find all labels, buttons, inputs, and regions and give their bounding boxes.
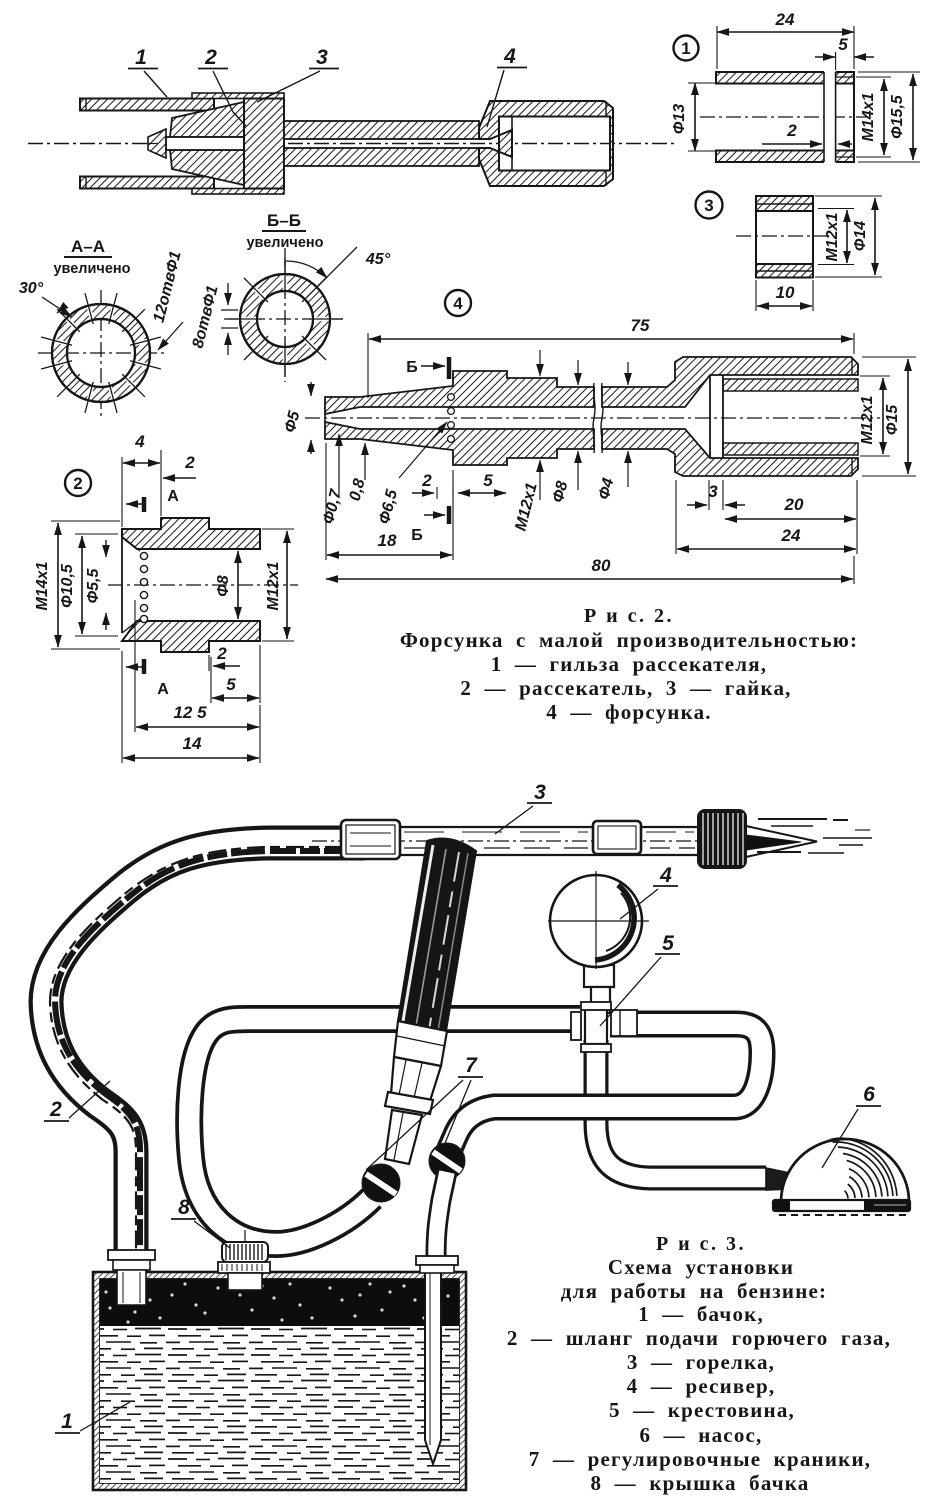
svg-text:Ф10,5: Ф10,5 [59,563,76,608]
svg-text:2: 2 [204,46,217,69]
svg-text:для работы на бензине:: для работы на бензине: [561,1279,827,1303]
svg-text:1 — бачок,: 1 — бачок, [638,1302,764,1326]
svg-text:1: 1 [135,46,147,69]
svg-text:А: А [157,681,169,698]
svg-text:5: 5 [838,35,848,54]
svg-text:Схема установки: Схема установки [608,1255,794,1279]
svg-text:7 — регулировочные краники,: 7 — регулировочные краники, [529,1447,871,1471]
svg-text:1: 1 [61,1410,73,1433]
svg-text:Б: Б [411,527,423,544]
svg-text:увеличено: увеличено [53,261,130,277]
svg-text:30°: 30° [19,280,44,297]
svg-text:3: 3 [534,781,546,804]
svg-text:Ф5,5: Ф5,5 [85,568,102,604]
svg-text:2: 2 [49,1098,62,1121]
svg-text:Ф14: Ф14 [852,221,869,251]
svg-text:80: 80 [592,556,611,575]
svg-text:4: 4 [659,864,672,887]
svg-text:Ф8: Ф8 [215,575,232,596]
svg-text:А: А [167,488,179,505]
svg-text:10: 10 [776,283,795,302]
svg-text:24: 24 [781,526,801,545]
svg-text:3: 3 [704,196,713,215]
svg-text:8: 8 [178,1196,190,1219]
svg-text:3: 3 [316,46,328,69]
svg-text:45°: 45° [365,251,391,268]
svg-text:Ф13: Ф13 [671,104,688,134]
svg-text:М12х1: М12х1 [265,561,282,610]
svg-text:Б–Б: Б–Б [267,211,301,230]
svg-text:4: 4 [453,294,463,313]
svg-text:Ф15: Ф15 [884,404,901,435]
svg-text:1 — гильза рассекателя,: 1 — гильза рассекателя, [491,652,767,676]
svg-text:1: 1 [681,39,690,58]
svg-text:М14х1: М14х1 [860,92,877,141]
svg-text:4 — ресивер,: 4 — ресивер, [627,1374,776,1398]
svg-text:Р и с. 2.: Р и с. 2. [584,605,674,627]
svg-text:Ф15,5: Ф15,5 [889,94,906,139]
svg-text:А–А: А–А [71,237,105,256]
svg-text:7: 7 [465,1054,478,1077]
svg-text:14: 14 [183,734,202,753]
svg-text:18: 18 [378,531,397,550]
svg-text:М12х1: М12х1 [859,395,876,444]
svg-text:6: 6 [863,1083,875,1106]
svg-text:Форсунка с малой производитель: Форсунка с малой производительностью: [400,628,858,652]
svg-text:3 — горелка,: 3 — горелка, [627,1350,775,1374]
svg-text:8 — крышка бачка: 8 — крышка бачка [591,1471,810,1495]
svg-text:75: 75 [631,316,650,335]
svg-text:2: 2 [73,474,82,493]
svg-text:4: 4 [503,45,516,68]
svg-text:12 5: 12 5 [173,703,207,722]
svg-text:5: 5 [662,932,674,955]
svg-text:3: 3 [708,482,718,501]
svg-text:5: 5 [483,471,493,490]
svg-text:2 — шланг подачи горючего газа: 2 — шланг подачи горючего газа, [507,1326,891,1350]
svg-text:24: 24 [775,10,795,29]
svg-text:6 — насос,: 6 — насос, [640,1423,763,1447]
svg-text:5 — крестовина,: 5 — крестовина, [609,1398,795,1422]
svg-text:2: 2 [216,644,227,663]
svg-text:Р и с. 3.: Р и с. 3. [656,1233,746,1255]
svg-text:5: 5 [226,675,236,694]
svg-text:4: 4 [134,432,145,451]
svg-text:2 — рассекатель, 3 — гайка,: 2 — рассекатель, 3 — гайка, [460,676,791,700]
svg-text:4 — форсунка.: 4 — форсунка. [546,700,711,724]
svg-text:20: 20 [784,495,804,514]
svg-text:М12х1: М12х1 [824,212,841,261]
svg-text:2: 2 [421,471,432,490]
svg-text:Б: Б [406,359,418,376]
svg-text:2: 2 [184,453,195,472]
svg-text:М14х1: М14х1 [34,561,51,610]
svg-text:2: 2 [786,121,797,140]
